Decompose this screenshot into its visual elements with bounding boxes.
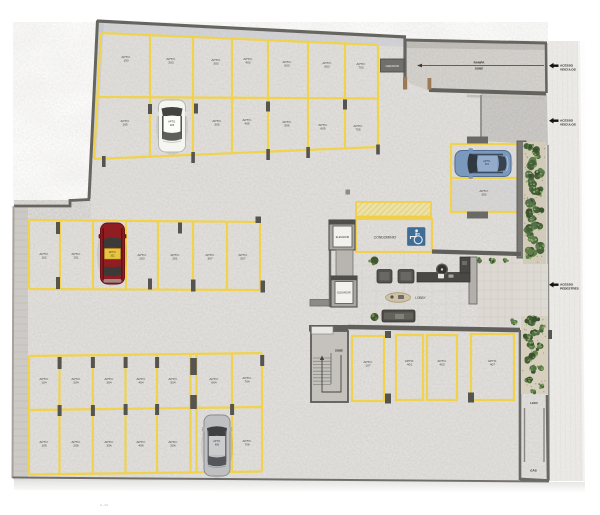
- svg-text:LOBBY: LOBBY: [415, 296, 427, 300]
- svg-text:301: 301: [485, 163, 490, 166]
- svg-text:A - 01: A - 01: [100, 503, 108, 507]
- svg-text:606: 606: [215, 443, 220, 446]
- svg-text:GÁS: GÁS: [530, 468, 537, 473]
- svg-text:VEICULOS: VEICULOS: [560, 67, 576, 71]
- svg-text:SOBE: SOBE: [475, 67, 484, 71]
- svg-text:205: 205: [170, 123, 175, 127]
- svg-text:ELEVADOR: ELEVADOR: [337, 292, 351, 295]
- svg-text:ELEVADOR: ELEVADOR: [336, 236, 350, 239]
- svg-text:CONDOMINIO: CONDOMINIO: [374, 236, 397, 240]
- svg-text:APTO.: APTO.: [168, 120, 176, 124]
- svg-text:RAMPA: RAMPA: [474, 61, 486, 65]
- svg-text:SOBE: SOBE: [335, 349, 343, 353]
- svg-text:PEDESTRES: PEDESTRES: [560, 286, 579, 290]
- svg-text:LIXO: LIXO: [530, 401, 538, 405]
- svg-text:GERADOR: GERADOR: [386, 64, 400, 68]
- svg-text:VEICULOS: VEICULOS: [560, 122, 576, 126]
- svg-text:202: 202: [110, 255, 115, 258]
